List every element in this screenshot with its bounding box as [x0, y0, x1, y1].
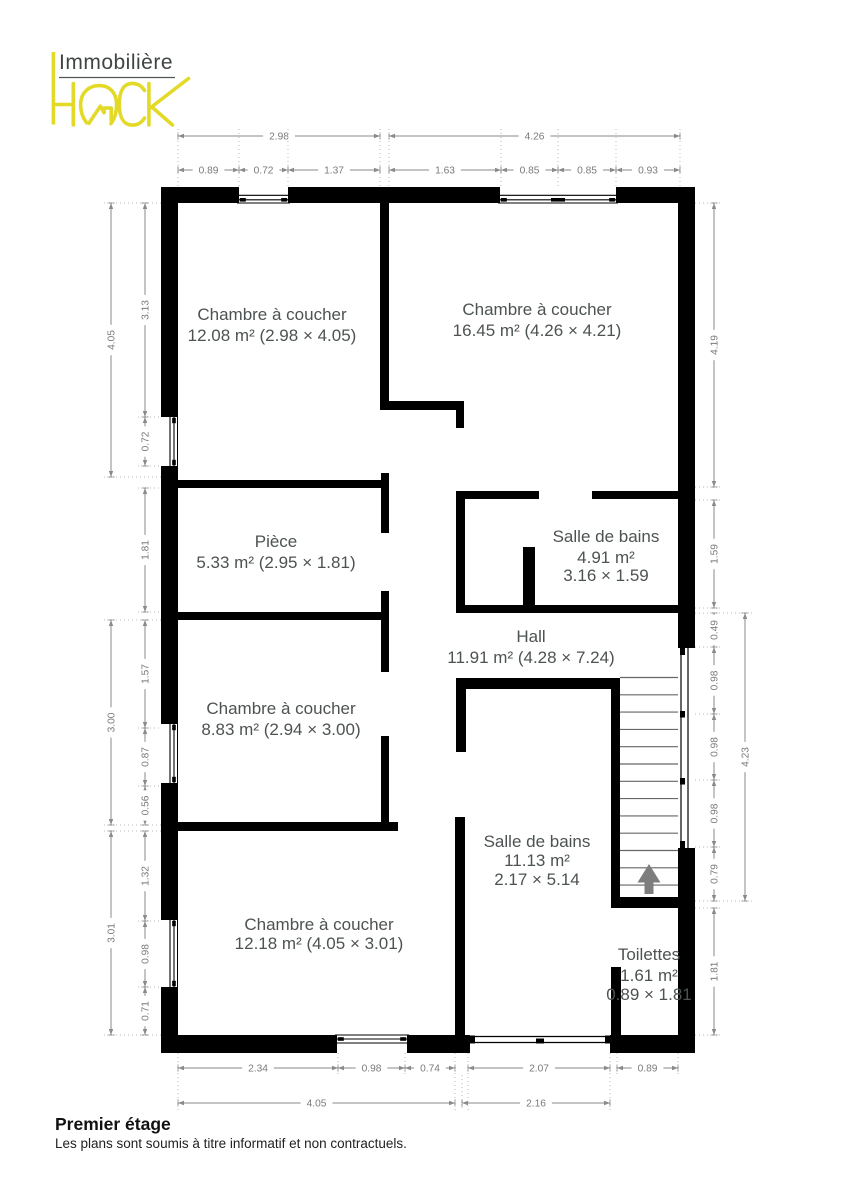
svg-text:3.16 × 1.59: 3.16 × 1.59	[563, 566, 649, 585]
svg-text:0.89: 0.89	[199, 166, 219, 177]
svg-text:1.57: 1.57	[141, 664, 152, 684]
svg-text:4.23: 4.23	[741, 747, 752, 767]
svg-text:0.98: 0.98	[141, 944, 152, 964]
svg-text:0.98: 0.98	[710, 737, 721, 757]
svg-text:4.26: 4.26	[525, 132, 545, 143]
svg-text:3.01: 3.01	[107, 923, 118, 943]
svg-text:11.13 m²: 11.13 m²	[504, 851, 570, 870]
svg-text:0.49: 0.49	[710, 620, 721, 640]
svg-text:Chambre à coucher: Chambre à coucher	[462, 300, 612, 319]
svg-text:0.93: 0.93	[638, 166, 658, 177]
svg-text:Immobilière: Immobilière	[59, 51, 173, 74]
svg-text:0.85: 0.85	[577, 166, 597, 177]
svg-text:Pièce: Pièce	[255, 532, 298, 551]
svg-text:5.33 m² (2.95 × 1.81): 5.33 m² (2.95 × 1.81)	[196, 553, 355, 572]
svg-text:0.56: 0.56	[141, 795, 152, 815]
svg-text:0.98: 0.98	[710, 670, 721, 690]
svg-text:2.98: 2.98	[269, 132, 289, 143]
svg-text:12.18 m² (4.05 × 3.01): 12.18 m² (4.05 × 3.01)	[235, 934, 404, 953]
svg-text:1.32: 1.32	[141, 866, 152, 886]
svg-text:Chambre à coucher: Chambre à coucher	[244, 915, 394, 934]
svg-text:0.74: 0.74	[420, 1064, 440, 1075]
svg-text:12.08 m² (2.98 × 4.05): 12.08 m² (2.98 × 4.05)	[188, 326, 357, 345]
svg-text:Les plans sont soumis à titre: Les plans sont soumis à titre informatif…	[55, 1136, 407, 1151]
svg-text:1.63: 1.63	[435, 166, 455, 177]
svg-text:Chambre à coucher: Chambre à coucher	[206, 699, 356, 718]
svg-text:Chambre à coucher: Chambre à coucher	[197, 305, 347, 324]
svg-text:2.34: 2.34	[248, 1064, 268, 1075]
svg-text:0.98: 0.98	[710, 803, 721, 823]
svg-text:0.72: 0.72	[141, 431, 152, 451]
svg-text:Toilettes: Toilettes	[618, 945, 680, 964]
svg-text:3.00: 3.00	[107, 712, 118, 732]
svg-text:2.07: 2.07	[529, 1064, 549, 1075]
svg-text:0.89 × 1.81: 0.89 × 1.81	[606, 985, 692, 1004]
svg-text:2.16: 2.16	[526, 1099, 546, 1110]
svg-text:1.59: 1.59	[710, 544, 721, 564]
svg-text:4.05: 4.05	[107, 330, 118, 350]
svg-text:0.89: 0.89	[638, 1064, 658, 1075]
svg-text:4.19: 4.19	[710, 335, 721, 355]
svg-text:4.91 m²: 4.91 m²	[577, 548, 635, 567]
svg-text:1.81: 1.81	[710, 961, 721, 981]
svg-text:0.87: 0.87	[141, 747, 152, 767]
svg-text:8.83 m² (2.94 × 3.00): 8.83 m² (2.94 × 3.00)	[201, 720, 360, 739]
svg-text:Salle de bains: Salle de bains	[553, 527, 660, 546]
svg-text:0.85: 0.85	[520, 166, 540, 177]
svg-text:16.45 m² (4.26 × 4.21): 16.45 m² (4.26 × 4.21)	[453, 321, 622, 340]
svg-text:0.98: 0.98	[362, 1064, 382, 1075]
svg-text:0.79: 0.79	[710, 864, 721, 884]
svg-text:0.72: 0.72	[254, 166, 274, 177]
svg-text:2.17 × 5.14: 2.17 × 5.14	[494, 870, 580, 889]
svg-text:0.71: 0.71	[141, 1001, 152, 1021]
svg-text:Salle de bains: Salle de bains	[484, 832, 591, 851]
svg-text:3.13: 3.13	[141, 300, 152, 320]
svg-text:11.91 m² (4.28 × 7.24): 11.91 m² (4.28 × 7.24)	[447, 648, 614, 667]
svg-text:Hall: Hall	[516, 627, 545, 646]
svg-text:1.37: 1.37	[324, 166, 344, 177]
svg-text:1.81: 1.81	[141, 540, 152, 560]
svg-text:Premier étage: Premier étage	[55, 1114, 171, 1134]
svg-text:4.05: 4.05	[307, 1099, 327, 1110]
svg-text:1.61 m²: 1.61 m²	[620, 966, 678, 985]
